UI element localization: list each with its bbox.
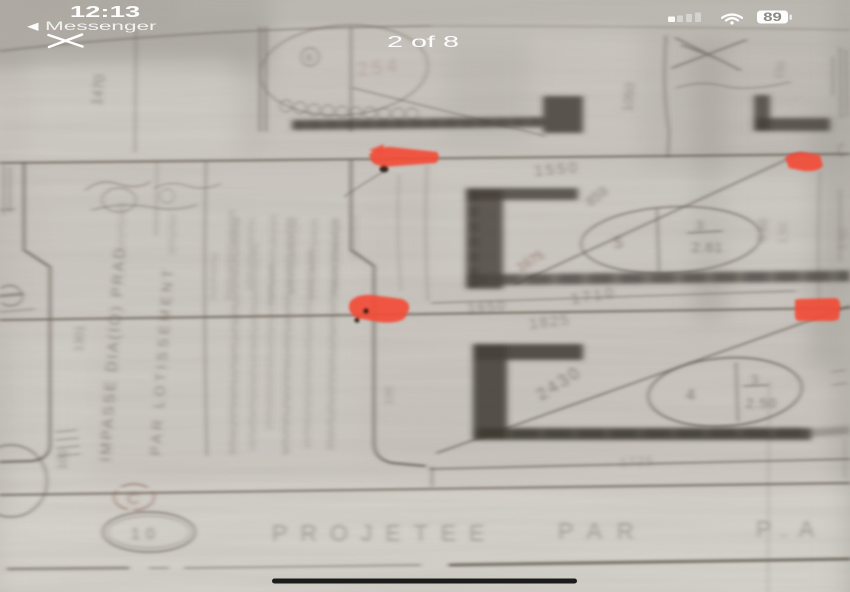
svg-text:2.61: 2.61 xyxy=(692,239,723,255)
svg-text:0.60: 0.60 xyxy=(755,218,770,242)
svg-text:1050: 1050 xyxy=(620,82,637,112)
svg-text:C: C xyxy=(127,489,139,508)
svg-text:1650: 1650 xyxy=(467,297,507,316)
svg-text:10: 10 xyxy=(131,526,161,543)
svg-text:3: 3 xyxy=(751,372,758,387)
svg-text:PAR: PAR xyxy=(558,518,649,544)
svg-text:unvmuwn: unvmuwn xyxy=(115,203,128,250)
svg-text:P.A: P.A xyxy=(756,516,826,542)
svg-text:PROJETEE: PROJETEE xyxy=(272,520,497,546)
svg-text:3: 3 xyxy=(696,218,703,233)
svg-text:1.50: 1.50 xyxy=(777,222,790,244)
svg-text:wmunvu: wmunvu xyxy=(166,214,179,256)
svg-text:12:13: 12:13 xyxy=(70,3,140,21)
svg-text:4: 4 xyxy=(686,387,695,404)
svg-text:6: 6 xyxy=(306,51,313,65)
svg-text:2 of 8: 2 of 8 xyxy=(387,33,459,51)
svg-text:Messenger: Messenger xyxy=(45,19,157,32)
svg-text:100: 100 xyxy=(383,386,396,405)
svg-text:1725: 1725 xyxy=(620,454,655,469)
svg-text:uwnvmuw: uwnvmuw xyxy=(349,215,362,261)
svg-text:nuvmwnu: nuvmwnu xyxy=(207,253,220,300)
svg-text:89: 89 xyxy=(763,11,782,24)
svg-text:2.50: 2.50 xyxy=(746,395,777,411)
svg-text:uwnvmunwvnu: uwnvmunwvnu xyxy=(243,217,258,290)
svg-text:100: 100 xyxy=(55,449,70,470)
svg-text:1.50: 1.50 xyxy=(837,228,850,250)
svg-text:1301: 1301 xyxy=(71,324,87,352)
svg-text:5: 5 xyxy=(614,235,623,252)
